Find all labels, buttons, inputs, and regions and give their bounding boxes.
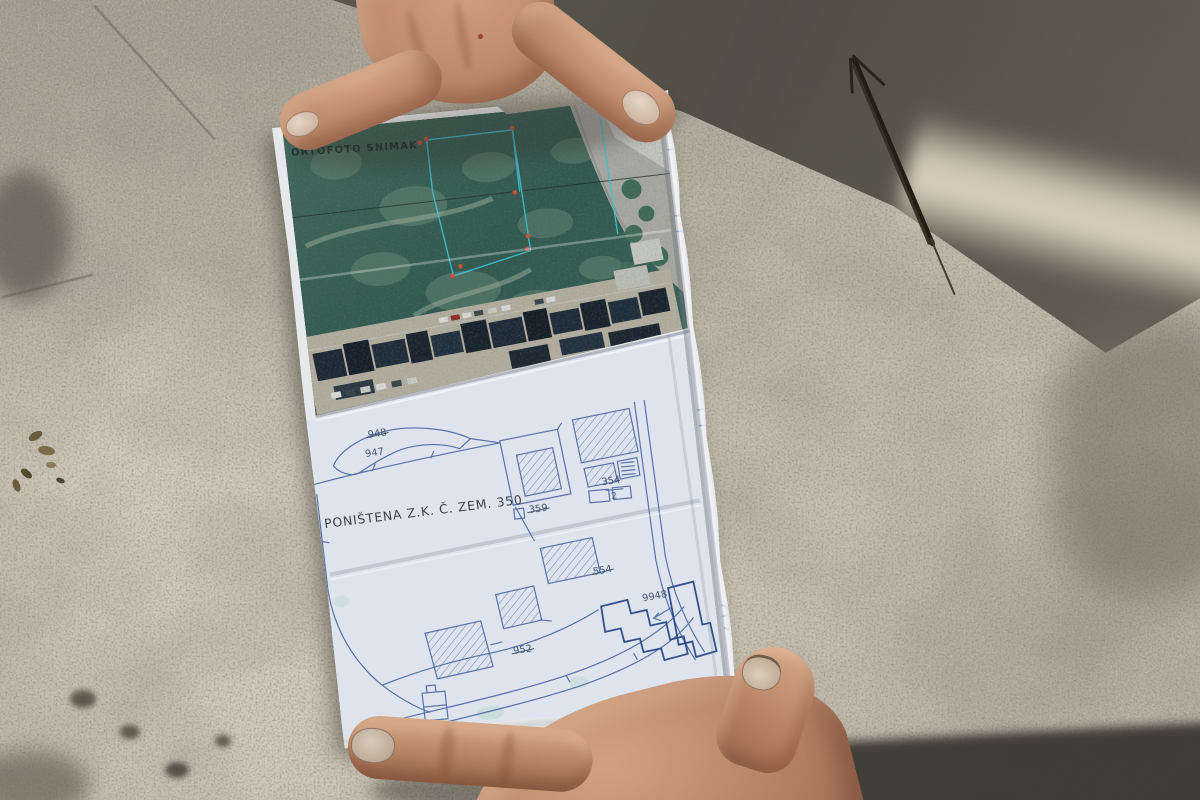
photograph-scene: ORTOFOTO SNIMAK PONIŠTENA Z.K. Č. ZEM. 3… — [0, 0, 1200, 800]
skin-mark — [478, 34, 483, 39]
folded-plan-sheet: ORTOFOTO SNIMAK PONIŠTENA Z.K. Č. ZEM. 3… — [272, 90, 740, 749]
